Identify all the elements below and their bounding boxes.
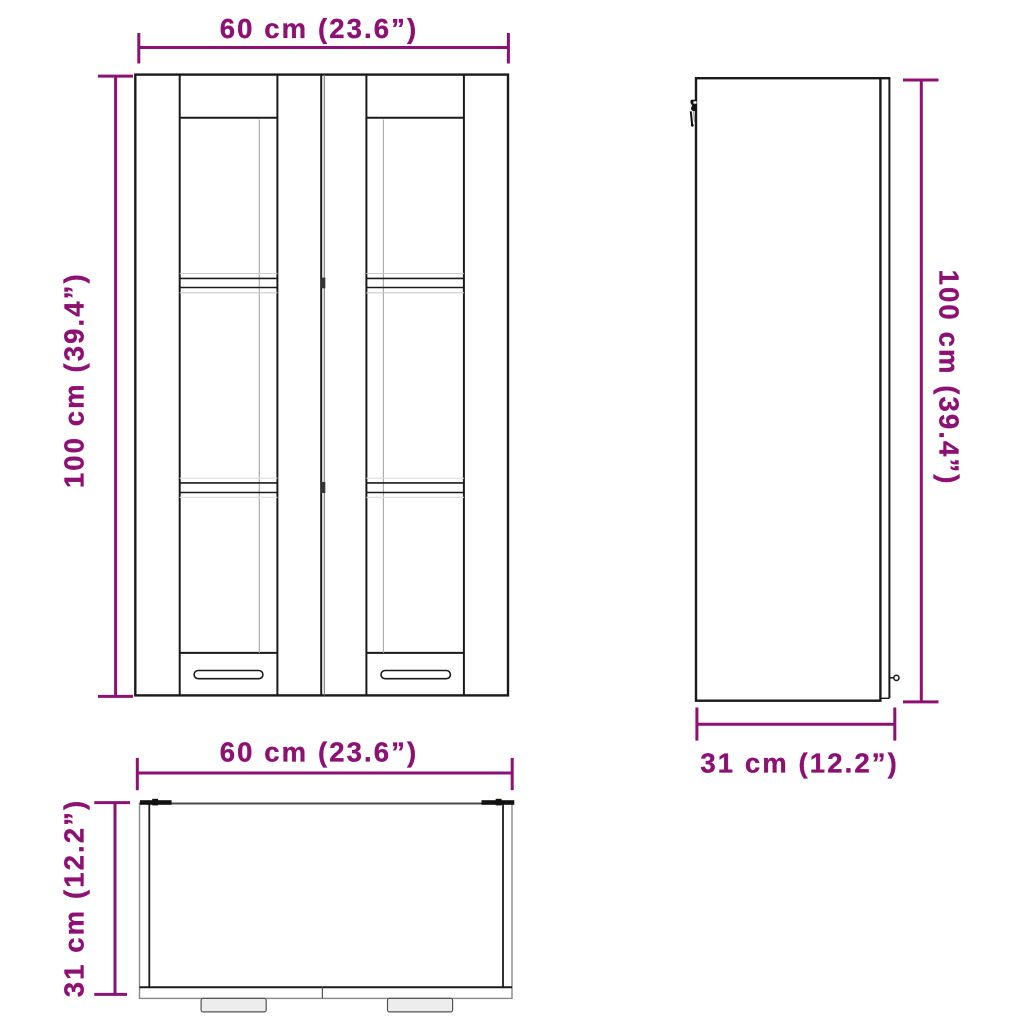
- svg-text:100 cm (39.4”): 100 cm (39.4”): [59, 272, 90, 488]
- svg-text:31 cm (12.2”): 31 cm (12.2”): [58, 799, 89, 998]
- svg-text:31 cm (12.2”): 31 cm (12.2”): [700, 748, 899, 779]
- svg-text:100 cm (39.4”): 100 cm (39.4”): [934, 270, 965, 486]
- svg-text:60 cm (23.6”): 60 cm (23.6”): [220, 737, 419, 768]
- svg-text:60 cm (23.6”): 60 cm (23.6”): [220, 13, 419, 44]
